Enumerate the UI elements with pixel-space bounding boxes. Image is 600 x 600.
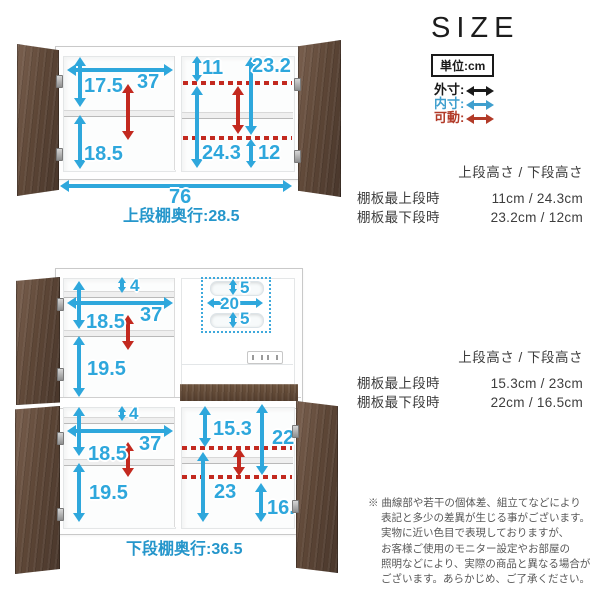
disclaimer-line: 実物に近い色目で表現しておりますが、 bbox=[368, 526, 598, 541]
hinge bbox=[56, 148, 63, 161]
arrow-ul-upper-height bbox=[77, 290, 81, 320]
dim-label-12: 12 bbox=[258, 143, 280, 163]
spec-row-label: 棚板最下段時 bbox=[357, 208, 440, 227]
lower-spec-header: 上段高さ / 下段高さ bbox=[357, 346, 583, 366]
upper-cabinet-left-door bbox=[17, 44, 59, 196]
arrow-ll-lower-height bbox=[77, 472, 81, 513]
arrow-lr-upper-min bbox=[203, 415, 207, 438]
spec-row-label: 棚板最上段時 bbox=[357, 374, 440, 393]
dim-label-ll-37: 37 bbox=[139, 434, 161, 454]
spec-row-label: 棚板最下段時 bbox=[357, 393, 440, 412]
cord-hole-bottom bbox=[210, 313, 264, 328]
dim-label-lr-22: 22 bbox=[272, 428, 294, 448]
dim-label-11: 11 bbox=[202, 58, 223, 78]
dim-label-niche-20: 20 bbox=[220, 295, 239, 312]
spec-row-value: 23.2cm / 12cm bbox=[491, 208, 583, 227]
arrow-lr-upper-max bbox=[260, 413, 264, 466]
dim-label-ul-4: 4 bbox=[130, 277, 139, 294]
counter-edge-line bbox=[181, 364, 293, 365]
dim-label-ul-18-5: 18.5 bbox=[86, 312, 125, 332]
spec-row-value: 22cm / 16.5cm bbox=[491, 393, 583, 412]
size-title: SIZE bbox=[431, 12, 519, 45]
dim-label-lr-15-3: 15.3 bbox=[213, 419, 252, 439]
table-row: 棚板最下段時 23.2cm / 12cm bbox=[357, 208, 583, 227]
arrow-niche-top-slot bbox=[231, 285, 235, 289]
arrow-niche-bottom-slot bbox=[231, 318, 235, 322]
upper-depth-label: 上段棚奥行:28.5 bbox=[123, 209, 239, 225]
double-arrow-icon bbox=[473, 117, 487, 121]
hinge bbox=[292, 425, 299, 438]
dim-label-18-5: 18.5 bbox=[84, 144, 123, 164]
spec-row-value: 15.3cm / 23cm bbox=[491, 374, 583, 393]
hinge bbox=[57, 368, 64, 381]
lower-depth-label: 下段棚奥行:36.5 bbox=[126, 542, 242, 558]
disclaimer-line: ※ 曲線部や若干の個体差、組立てなどにより bbox=[368, 496, 598, 511]
table-row: 棚板最下段時 22cm / 16.5cm bbox=[357, 393, 583, 412]
dim-label-76: 76 bbox=[169, 187, 191, 207]
dim-label-24-3: 24.3 bbox=[202, 143, 241, 163]
dim-label-niche-5-top: 5 bbox=[240, 279, 249, 296]
dim-label-23-2: 23.2 bbox=[252, 56, 291, 76]
hinge bbox=[57, 508, 64, 521]
dim-label-ll-18-5: 18.5 bbox=[88, 444, 127, 464]
spec-row-label: 棚板最上段時 bbox=[357, 189, 440, 208]
arrow-upper-left-bottom-height bbox=[78, 124, 82, 160]
arrow-upper-right-movable bbox=[236, 95, 240, 125]
hinge bbox=[57, 298, 64, 311]
arrow-ul-lower-height bbox=[77, 345, 81, 388]
arrow-lr-movable bbox=[237, 457, 241, 467]
arrow-ll-top-gap bbox=[120, 412, 124, 415]
upper-spec-header: 上段高さ / 下段高さ bbox=[357, 161, 583, 181]
disclaimer-line: ございます。あらかじめ、ご了承ください。 bbox=[368, 572, 598, 587]
arrow-ul-top-gap bbox=[120, 283, 124, 287]
dim-label-ul-19-5: 19.5 bbox=[87, 359, 126, 379]
lower-cabinet-upper-left-door bbox=[16, 277, 60, 405]
hinge bbox=[56, 75, 63, 88]
arrow-lr-lower-max bbox=[201, 461, 205, 513]
dim-label-lr-23: 23 bbox=[214, 482, 236, 502]
hinge bbox=[294, 150, 301, 163]
arrow-ll-upper-height bbox=[77, 416, 81, 447]
arrow-ul-movable bbox=[126, 324, 130, 341]
dim-label-ll-19-5: 19.5 bbox=[89, 483, 128, 503]
lower-cabinet-right-door bbox=[296, 401, 338, 573]
disclaimer-line: 表記と多少の差異が生じる事がございます。 bbox=[368, 511, 598, 526]
disclaimer-note: ※ 曲線部や若干の個体差、組立てなどにより 表記と多少の差異が生じる事がございま… bbox=[368, 496, 598, 587]
power-outlet bbox=[247, 351, 283, 364]
arrow-upper-right-bottom-gap bbox=[249, 146, 253, 161]
shelf-position-dotted-line-bottom bbox=[183, 136, 292, 140]
disclaimer-line: 照明などにより、実際の商品と異なる場合が bbox=[368, 557, 598, 572]
table-row: 棚板最上段時 15.3cm / 23cm bbox=[357, 374, 583, 393]
spec-row-value: 11cm / 24.3cm bbox=[492, 189, 583, 208]
hinge bbox=[57, 432, 64, 445]
unit-box: 単位:cm bbox=[431, 54, 494, 77]
double-arrow-icon bbox=[473, 89, 487, 93]
double-arrow-icon bbox=[473, 103, 487, 107]
hinge bbox=[294, 78, 301, 91]
size-diagram-page: 17.5 37 18.5 11 23.2 24.3 12 76 上段棚奥行:28… bbox=[0, 0, 600, 600]
arrow-lr-lower-min bbox=[259, 492, 263, 513]
legend-item-movable: 可動: bbox=[434, 107, 496, 126]
dim-label-ul-37: 37 bbox=[140, 305, 162, 325]
dim-label-niche-5-bottom: 5 bbox=[240, 310, 249, 327]
table-row: 棚板最上段時 11cm / 24.3cm bbox=[357, 189, 583, 208]
hinge bbox=[292, 500, 299, 513]
legend-movable-label: 可動: bbox=[434, 110, 464, 125]
lower-cabinet-lower-left-door bbox=[15, 406, 60, 574]
arrow-upper-right-top-gap bbox=[195, 63, 199, 75]
lower-spec-table: 上段高さ / 下段高さ 棚板最上段時 15.3cm / 23cm 棚板最下段時 … bbox=[357, 346, 583, 412]
dim-label-ll-4: 4 bbox=[129, 405, 138, 422]
disclaimer-line: お客様ご使用のモニター設定やお部屋の bbox=[368, 542, 598, 557]
slide-out-shelf bbox=[180, 384, 298, 401]
arrow-upper-left-movable bbox=[126, 93, 130, 131]
upper-cabinet-right-door bbox=[298, 40, 341, 197]
dim-label-37: 37 bbox=[137, 72, 159, 92]
arrow-upper-right-bottom-max bbox=[195, 95, 199, 159]
upper-spec-table: 上段高さ / 下段高さ 棚板最上段時 11cm / 24.3cm 棚板最下段時 … bbox=[357, 161, 583, 227]
dim-label-17-5: 17.5 bbox=[84, 76, 123, 96]
